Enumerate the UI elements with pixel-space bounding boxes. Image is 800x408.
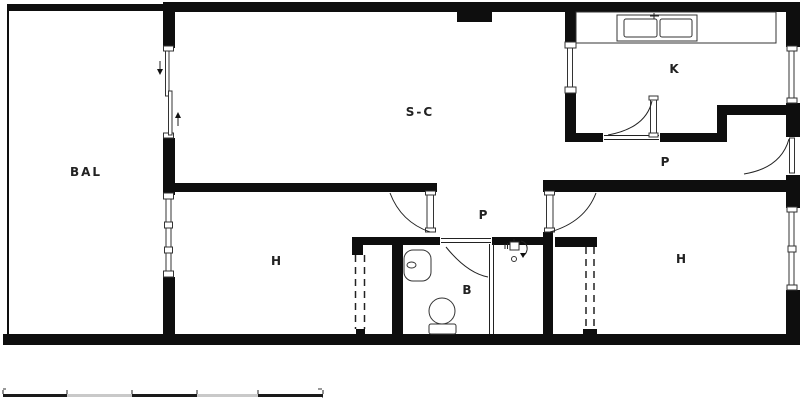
kitchen-partition-window <box>565 42 576 93</box>
bedroom-right-door <box>545 191 597 232</box>
bedroom-right-window <box>787 207 797 290</box>
room-label-hall-upper: P <box>661 155 672 169</box>
sink-basin-right <box>660 19 692 37</box>
floor-plan: BAL S-C K P P B H H <box>0 0 800 408</box>
shower-fixture-icon <box>505 239 527 262</box>
slide-down-arrowhead-icon <box>157 69 163 75</box>
bathroom-door <box>441 239 491 278</box>
room-label-hall-lower: P <box>479 208 490 222</box>
slide-up-arrowhead-icon <box>175 112 181 118</box>
room-label-balcony: BAL <box>70 165 102 179</box>
kitchen-counter <box>576 12 776 43</box>
room-label-bedroom-right: H <box>676 252 688 266</box>
scale-bar <box>3 388 323 397</box>
bedroom-left-door-arc <box>390 193 430 232</box>
scale-mark <box>318 388 322 390</box>
kitchen-door-arc <box>608 101 652 135</box>
bedroom-left-window <box>164 193 174 277</box>
entrance-door-arc <box>744 139 789 174</box>
toilet <box>429 298 456 334</box>
sink-basin-left <box>624 19 657 37</box>
room-label-bathroom: B <box>462 283 473 297</box>
kitchen-right-window <box>787 46 797 103</box>
closet-left-dashed <box>356 255 365 329</box>
scale-mark <box>3 388 6 390</box>
shower-partition <box>490 244 494 334</box>
room-label-bedroom-left: H <box>271 254 283 268</box>
kitchen-door <box>604 96 659 140</box>
room-label-living: S-C <box>406 105 434 119</box>
bedroom-right-door-arc <box>550 193 596 232</box>
bathroom-sink <box>404 250 431 281</box>
bathroom-door-arc <box>446 247 488 277</box>
bedroom-left-door <box>390 191 436 232</box>
balcony-sliding-window <box>164 46 174 138</box>
room-label-kitchen: K <box>669 62 680 76</box>
entrance-door <box>744 137 800 175</box>
closet-right-dashed <box>586 247 594 329</box>
